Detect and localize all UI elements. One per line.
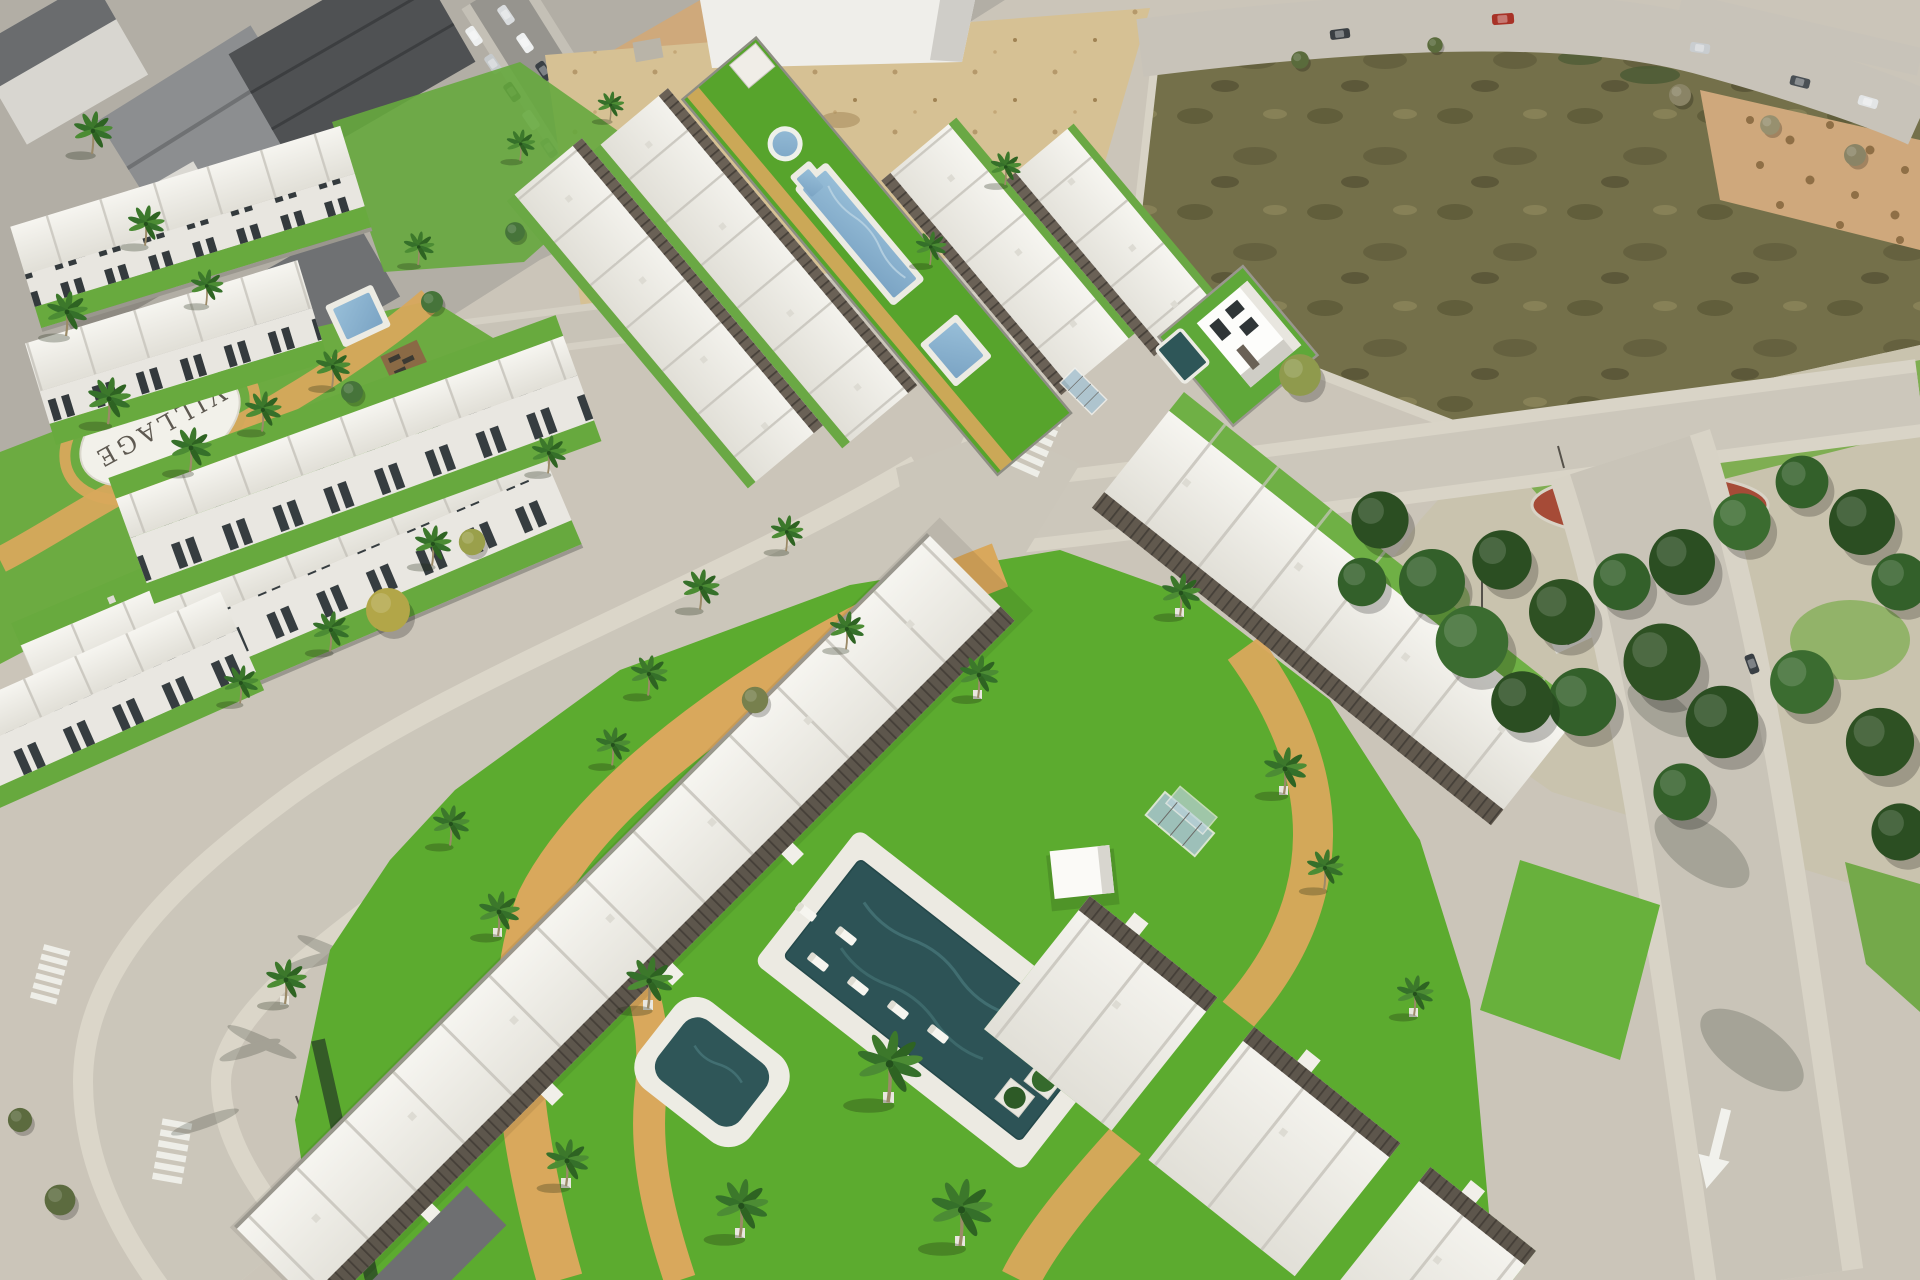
garden-pavilion xyxy=(1046,845,1120,912)
red-car xyxy=(1492,13,1515,26)
aerial-render-stage: Aerial 3D render of a new-build Mediterr… xyxy=(0,0,1920,1280)
aerial-render: Aerial 3D render of a new-build Mediterr… xyxy=(0,0,1920,1280)
